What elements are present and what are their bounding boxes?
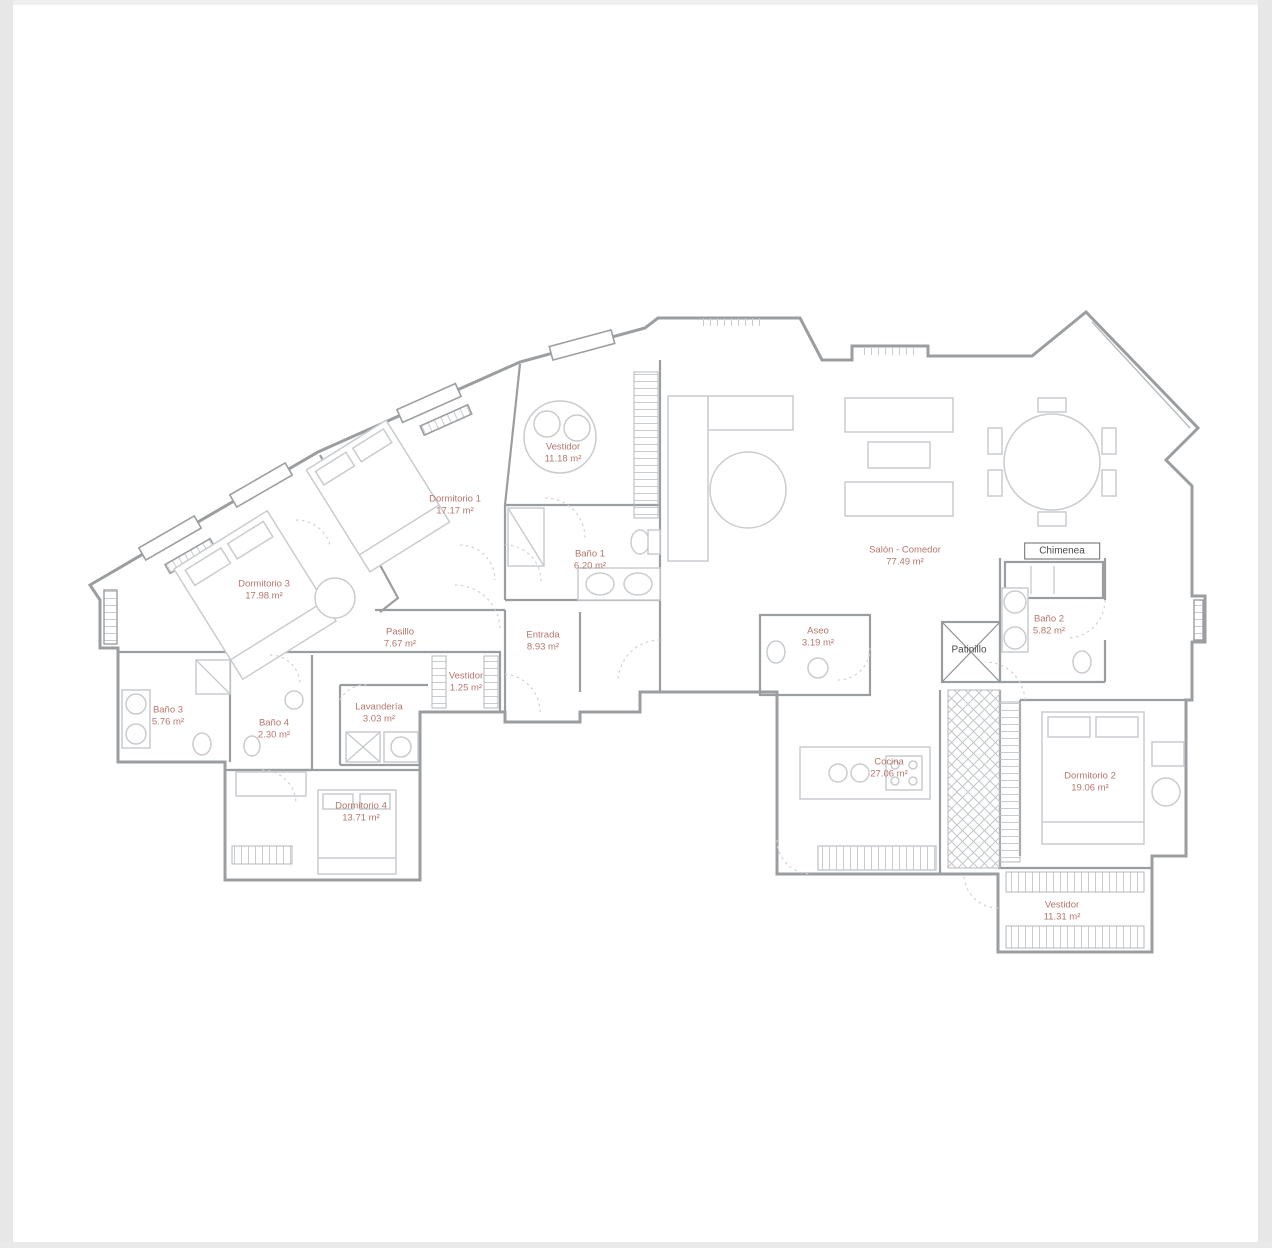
room-label-aseo: Aseo 3.19 m² (802, 626, 834, 649)
room-label-vestidor-mid: Vestidor 1.25 m² (449, 671, 483, 694)
room-name: Dormitorio 4 (335, 801, 387, 813)
room-area: 17.17 m² (429, 505, 481, 517)
room-name: Baño 4 (258, 718, 290, 730)
room-area: 27.06 m² (870, 768, 908, 780)
room-label-bano-3: Baño 3 5.76 m² (152, 705, 184, 728)
floor-plan-drawing (0, 0, 1272, 1248)
room-name: Dormitorio 1 (429, 494, 481, 506)
room-name: Lavandería (355, 702, 403, 714)
room-name: Baño 3 (152, 705, 184, 717)
room-name: Aseo (802, 626, 834, 638)
room-name: Entrada (526, 630, 559, 642)
room-label-dormitorio-2: Dormitorio 2 19.06 m² (1064, 771, 1116, 794)
room-name: Salón - Comedor (869, 545, 941, 557)
room-label-lavanderia: Lavandería 3.03 m² (355, 702, 403, 725)
room-label-bano-4: Baño 4 2.30 m² (258, 718, 290, 741)
room-area: 77.49 m² (869, 556, 941, 568)
room-area: 3.19 m² (802, 637, 834, 649)
room-area: 11.18 m² (545, 453, 582, 465)
room-area: 5.76 m² (152, 716, 184, 728)
room-area: 3.03 m² (355, 713, 403, 725)
kitchen-island (800, 747, 930, 799)
room-area: 11.31 m² (1044, 911, 1081, 923)
room-label-bano-1: Baño 1 6.20 m² (574, 549, 606, 572)
chimenea-label: Chimenea (1024, 543, 1100, 560)
room-label-entrada: Entrada 8.93 m² (526, 630, 559, 653)
room-area: 13.71 m² (335, 812, 387, 824)
room-area: 19.06 m² (1064, 782, 1116, 794)
room-name: Dormitorio 3 (238, 579, 290, 591)
room-name: Dormitorio 2 (1064, 771, 1116, 783)
room-label-dormitorio-3: Dormitorio 3 17.98 m² (238, 579, 290, 602)
patinillo-label: Patinillo (951, 645, 986, 656)
kitchen-counter (818, 846, 936, 870)
room-name: Baño 2 (1033, 614, 1065, 626)
room-area: 6.20 m² (574, 560, 606, 572)
room-area: 5.82 m² (1033, 625, 1065, 637)
room-label-vestidor-bottom: Vestidor 11.31 m² (1044, 900, 1081, 923)
room-name: Pasillo (384, 627, 416, 639)
floor-plan-page: Vestidor 11.18 m² Dormitorio 1 17.17 m² … (0, 0, 1272, 1248)
room-area: 7.67 m² (384, 638, 416, 650)
room-name: Cocina (870, 757, 908, 769)
room-area: 17.98 m² (238, 590, 290, 602)
room-label-dormitorio-1: Dormitorio 1 17.17 m² (429, 494, 481, 517)
room-label-bano-2: Baño 2 5.82 m² (1033, 614, 1065, 637)
room-name: Vestidor (449, 671, 483, 683)
room-name: Baño 1 (574, 549, 606, 561)
room-name: Vestidor (1044, 900, 1081, 912)
room-label-salon-comedor: Salón - Comedor 77.49 m² (869, 545, 941, 568)
room-area: 1.25 m² (449, 682, 483, 694)
room-label-pasillo: Pasillo 7.67 m² (384, 627, 416, 650)
room-area: 2.30 m² (258, 729, 290, 741)
stool (315, 578, 355, 618)
room-label-vestidor-top: Vestidor 11.18 m² (545, 442, 582, 465)
room-name: Vestidor (545, 442, 582, 454)
room-area: 8.93 m² (526, 641, 559, 653)
room-label-dormitorio-4: Dormitorio 4 13.71 m² (335, 801, 387, 824)
room-label-cocina: Cocina 27.06 m² (870, 757, 908, 780)
